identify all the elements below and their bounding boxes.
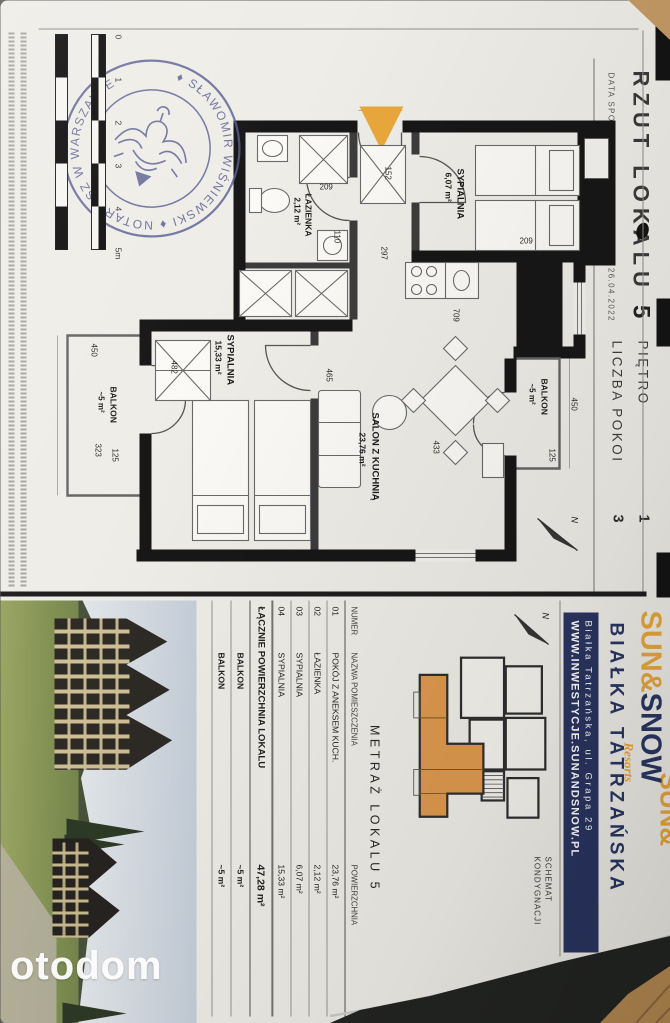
svg-text:4: 4 bbox=[113, 206, 123, 211]
entrance-arrow-icon bbox=[359, 106, 403, 150]
svg-text:2: 2 bbox=[113, 120, 123, 125]
location-title: BIAŁKA TATRZAŃSKA bbox=[604, 622, 626, 893]
svg-text:209: 209 bbox=[519, 236, 533, 245]
info-rule bbox=[559, 600, 560, 956]
table-row: 04SYPIALNIA15,33 m² bbox=[272, 600, 290, 1016]
document-page: RZUT LOKALU 5 DATA SPORZĄDZENIA KARTY LO… bbox=[0, 0, 670, 1023]
room-label: ŁAZIENKA bbox=[303, 193, 313, 236]
page-border-top bbox=[642, 30, 643, 592]
fine-print-text bbox=[20, 32, 26, 588]
scale-bar: 0 1 2 3 4 5m bbox=[45, 30, 125, 270]
svg-text:N: N bbox=[569, 516, 579, 523]
address-line: Białka Tatrzańska, ul. Grapa 29 bbox=[582, 620, 593, 952]
svg-text:23,76 m²: 23,76 m² bbox=[357, 432, 367, 466]
svg-text:709: 709 bbox=[451, 308, 460, 322]
svg-text:1: 1 bbox=[113, 77, 123, 82]
schematic-balconies bbox=[413, 692, 419, 795]
table-header-row: NUMER NAZWA POMIESZCZENIA POWIERZCHNIA bbox=[344, 600, 362, 1016]
table-title: METRAŻ LOKALU 5 bbox=[367, 600, 381, 1016]
area-table: METRAŻ LOKALU 5 NUMER NAZWA POMIESZCZENI… bbox=[211, 600, 381, 1016]
fine-print-text bbox=[8, 32, 14, 588]
table-row: BALKON~5 m² bbox=[211, 600, 230, 1016]
header-black-tab bbox=[656, 298, 670, 346]
room-label: BALKON bbox=[108, 386, 118, 422]
table-row: 03SYPIALNIA6,07 m² bbox=[290, 600, 308, 1016]
page-border-left bbox=[38, 28, 638, 29]
north-arrow-icon: N bbox=[510, 608, 554, 652]
table-row: 01POKÓJ Z ANEKSEM KUCH.23,76 m² bbox=[326, 600, 344, 1016]
floor-schematic bbox=[388, 640, 558, 855]
svg-text:N: N bbox=[540, 612, 550, 619]
svg-text:482: 482 bbox=[169, 360, 178, 374]
svg-text:323: 323 bbox=[93, 443, 102, 457]
room-label: SALON Z KUCHNIĄ bbox=[369, 412, 380, 500]
svg-text:0: 0 bbox=[113, 34, 123, 39]
svg-text:110: 110 bbox=[332, 230, 341, 243]
page-title: RZUT LOKALU 5 bbox=[626, 70, 654, 320]
room-label: SYPIALNIA bbox=[454, 168, 465, 219]
website-bar: Białka Tatrzańska, ul. Grapa 29 WWW.INWE… bbox=[563, 612, 598, 952]
otodom-watermark: otodom bbox=[10, 944, 163, 989]
header-black-tab bbox=[655, 0, 670, 80]
table-row: BALKON~5 m² bbox=[230, 600, 249, 1016]
scale-labels: 0 1 2 3 4 5m bbox=[113, 34, 123, 259]
svg-text:125: 125 bbox=[110, 448, 119, 462]
website-url: WWW.INWESTYCJE.SUNANDSNOW.PL bbox=[568, 620, 580, 952]
room-label: SYPIALNIA bbox=[224, 334, 235, 385]
svg-text:450: 450 bbox=[569, 397, 578, 411]
svg-text:125: 125 bbox=[547, 448, 556, 462]
north-arrow-icon: N bbox=[537, 516, 579, 550]
header-black-tab bbox=[656, 552, 670, 597]
listing-photo: RZUT LOKALU 5 DATA SPORZĄDZENIA KARTY LO… bbox=[0, 0, 670, 1023]
svg-text:465: 465 bbox=[324, 368, 333, 382]
scale-segments bbox=[55, 34, 105, 249]
svg-text:433: 433 bbox=[431, 440, 440, 454]
svg-text:2,12 m²: 2,12 m² bbox=[292, 197, 301, 225]
sunsnow-logo: SUN&SNOW bbox=[633, 610, 666, 782]
svg-text:450: 450 bbox=[89, 343, 98, 357]
svg-text:209: 209 bbox=[319, 182, 333, 191]
svg-text:15,33 m²: 15,33 m² bbox=[213, 340, 223, 374]
room-label: BALKON bbox=[539, 378, 549, 414]
svg-text:297: 297 bbox=[379, 246, 388, 260]
svg-text:~5 m²: ~5 m² bbox=[527, 383, 536, 404]
table-row: 02ŁAZIENKA2,12 m² bbox=[308, 600, 326, 1016]
table-total-row: ŁĄCZNIE POWIERZCHNIA LOKALU 47,28 m² bbox=[249, 600, 272, 1016]
svg-text:3: 3 bbox=[113, 163, 123, 168]
svg-text:5m: 5m bbox=[113, 247, 123, 259]
logo-fragment: SUN& bbox=[653, 772, 670, 846]
svg-text:~5 m²: ~5 m² bbox=[96, 391, 105, 412]
tree bbox=[62, 1002, 126, 1023]
svg-text:152: 152 bbox=[383, 166, 392, 180]
svg-text:6,07 m²: 6,07 m² bbox=[443, 172, 453, 201]
shaft-inset bbox=[584, 138, 608, 178]
schematic-caption: SCHEMAT bbox=[543, 856, 552, 902]
